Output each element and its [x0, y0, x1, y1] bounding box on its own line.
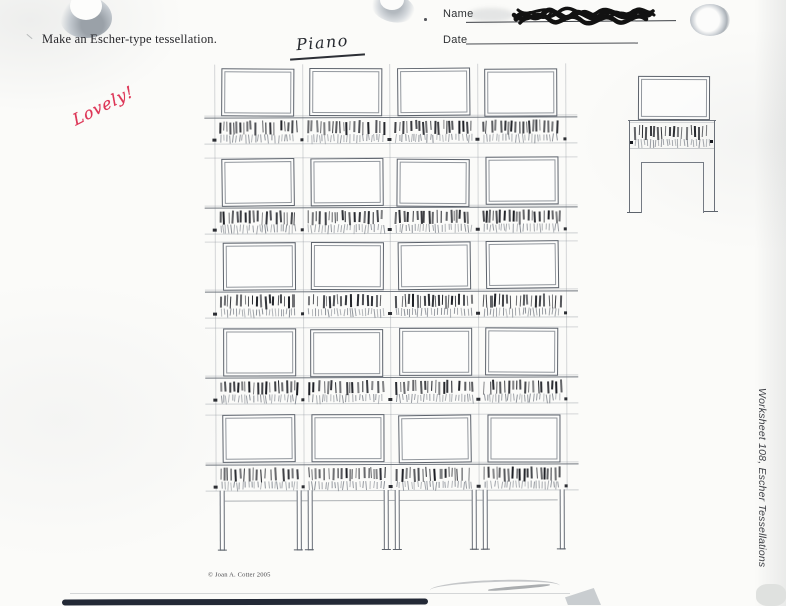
key-front-stroke: [672, 140, 673, 146]
key-front-stroke: [634, 139, 636, 146]
sample-leg-foot-right: [704, 211, 718, 212]
sample-keyboard-bottom-line: [629, 148, 714, 149]
key-stroke: [639, 125, 641, 135]
sample-opening-left-line: [641, 162, 642, 213]
key-front-stroke: [680, 139, 681, 146]
key-front-stroke: [683, 139, 685, 146]
keyboard-strip: [633, 125, 711, 147]
bottom-edge-bar: [62, 599, 428, 606]
key-front-stroke: [655, 140, 657, 147]
key-front-stroke: [658, 139, 659, 146]
piano-lid-rect: [637, 75, 709, 119]
key-front-stroke: [705, 139, 706, 147]
key-stroke: [690, 125, 692, 135]
key-front-stroke: [702, 139, 704, 147]
key-stroke: [665, 126, 667, 136]
key-stroke: [681, 127, 683, 139]
key-stroke: [673, 126, 676, 137]
sample-opening-top-line: [641, 162, 703, 163]
key-stroke: [653, 126, 655, 137]
key-front-stroke: [669, 139, 671, 145]
key-stroke: [661, 127, 663, 139]
sample-body-top-line: [628, 120, 716, 121]
sample-body-top-faint: [629, 122, 714, 123]
key-stroke: [669, 127, 671, 136]
key-stroke: [634, 127, 636, 140]
worksheet-side-label: Worksheet 108, Escher Tessellations: [753, 388, 768, 576]
key-front-stroke: [641, 139, 643, 148]
key-front-stroke: [687, 139, 689, 147]
key-stroke: [698, 127, 700, 140]
key-front-stroke: [650, 139, 651, 148]
sample-side-line-right: [714, 120, 715, 211]
key-stroke: [650, 126, 652, 136]
key-front-stroke: [674, 139, 676, 146]
sample-opening-right-line: [703, 162, 704, 213]
sample-leg-foot-left: [627, 212, 641, 213]
sample-piano-drawing: [0, 0, 786, 606]
corner-shadow-patch: [756, 584, 786, 606]
key-front-stroke: [647, 139, 648, 146]
key-front-stroke: [638, 139, 640, 148]
key-stroke: [694, 126, 696, 137]
key-stroke: [641, 125, 642, 138]
key-front-stroke: [693, 140, 694, 147]
sample-keyboard-dot-right: [710, 140, 713, 143]
scanned-worksheet-page: Make an Escher-type tessellation. Piano …: [0, 0, 786, 606]
key-front-stroke: [663, 139, 664, 145]
key-stroke: [702, 126, 704, 137]
key-stroke: [677, 127, 679, 137]
key-stroke: [706, 125, 707, 136]
copyright-text: © Joan A. Cotter 2005: [208, 571, 271, 578]
sample-side-line-left: [629, 120, 630, 212]
sample-keyboard-dot-left: [630, 141, 633, 144]
key-front-stroke: [696, 139, 697, 146]
key-stroke: [686, 127, 688, 140]
piano-lid-inner-line: [640, 78, 706, 116]
key-front-stroke: [661, 139, 662, 147]
key-front-stroke: [677, 139, 678, 148]
